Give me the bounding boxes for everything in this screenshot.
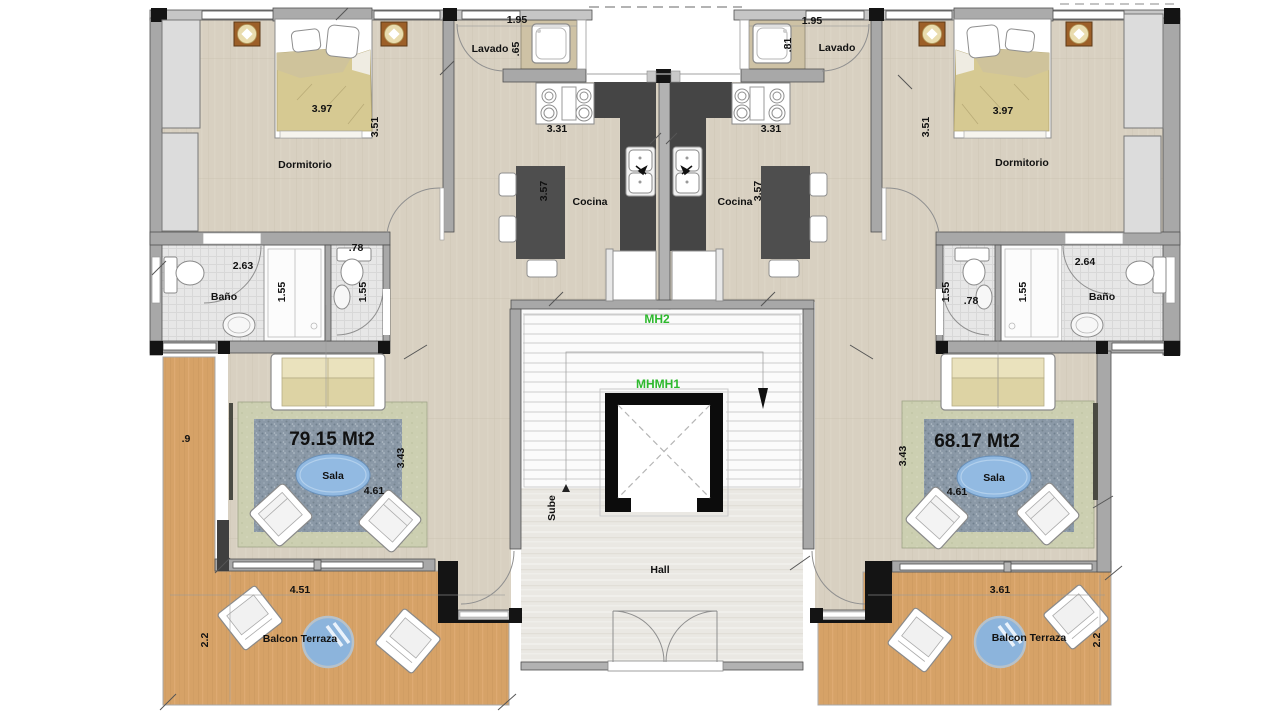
svg-text:Sala: Sala xyxy=(322,470,344,482)
svg-text:3.61: 3.61 xyxy=(990,584,1011,596)
svg-text:Hall: Hall xyxy=(650,564,669,576)
svg-text:1.55: 1.55 xyxy=(276,282,288,303)
svg-text:1.95: 1.95 xyxy=(507,14,528,26)
svg-text:79.15 Mt2: 79.15 Mt2 xyxy=(289,429,375,450)
svg-text:.78: .78 xyxy=(964,295,979,307)
svg-text:Baño: Baño xyxy=(211,291,237,303)
svg-text:3.51: 3.51 xyxy=(369,117,381,138)
svg-text:Balcon Terraza: Balcon Terraza xyxy=(263,633,338,645)
svg-text:3.57: 3.57 xyxy=(538,181,550,202)
svg-text:3.97: 3.97 xyxy=(993,105,1014,117)
svg-text:3.57: 3.57 xyxy=(752,181,764,202)
svg-text:Dormitorio: Dormitorio xyxy=(995,157,1049,169)
svg-text:MHMH1: MHMH1 xyxy=(636,377,680,391)
svg-text:68.17 Mt2: 68.17 Mt2 xyxy=(934,431,1020,452)
svg-text:.65: .65 xyxy=(510,42,522,57)
svg-text:3.43: 3.43 xyxy=(897,446,909,467)
svg-text:.78: .78 xyxy=(349,242,364,254)
svg-text:Cocina: Cocina xyxy=(717,196,752,208)
svg-text:.81: .81 xyxy=(782,38,794,53)
svg-text:Lavado: Lavado xyxy=(472,43,509,55)
svg-text:Lavado: Lavado xyxy=(819,42,856,54)
svg-text:2.64: 2.64 xyxy=(1075,256,1096,268)
svg-text:Sala: Sala xyxy=(983,472,1005,484)
svg-text:1.95: 1.95 xyxy=(802,15,823,27)
svg-text:2.2: 2.2 xyxy=(199,633,211,648)
svg-text:Cocina: Cocina xyxy=(572,196,607,208)
svg-text:4.51: 4.51 xyxy=(290,584,311,596)
svg-text:MH2: MH2 xyxy=(644,312,670,326)
svg-text:3.31: 3.31 xyxy=(761,123,782,135)
svg-text:Baño: Baño xyxy=(1089,291,1115,303)
svg-text:Dormitorio: Dormitorio xyxy=(278,159,332,171)
svg-text:.9: .9 xyxy=(182,433,191,445)
svg-text:4.61: 4.61 xyxy=(364,485,385,497)
svg-text:3.97: 3.97 xyxy=(312,103,333,115)
svg-text:1.55: 1.55 xyxy=(1017,282,1029,303)
svg-text:3.51: 3.51 xyxy=(920,117,932,138)
svg-text:2.2: 2.2 xyxy=(1091,633,1103,648)
svg-text:3.31: 3.31 xyxy=(547,123,568,135)
svg-text:Balcon Terraza: Balcon Terraza xyxy=(992,632,1067,644)
svg-text:1.55: 1.55 xyxy=(940,282,952,303)
svg-text:3.43: 3.43 xyxy=(395,448,407,469)
svg-text:2.63: 2.63 xyxy=(233,260,254,272)
svg-text:Sube: Sube xyxy=(546,495,558,521)
svg-text:1.55: 1.55 xyxy=(357,282,369,303)
svg-text:4.61: 4.61 xyxy=(947,486,968,498)
